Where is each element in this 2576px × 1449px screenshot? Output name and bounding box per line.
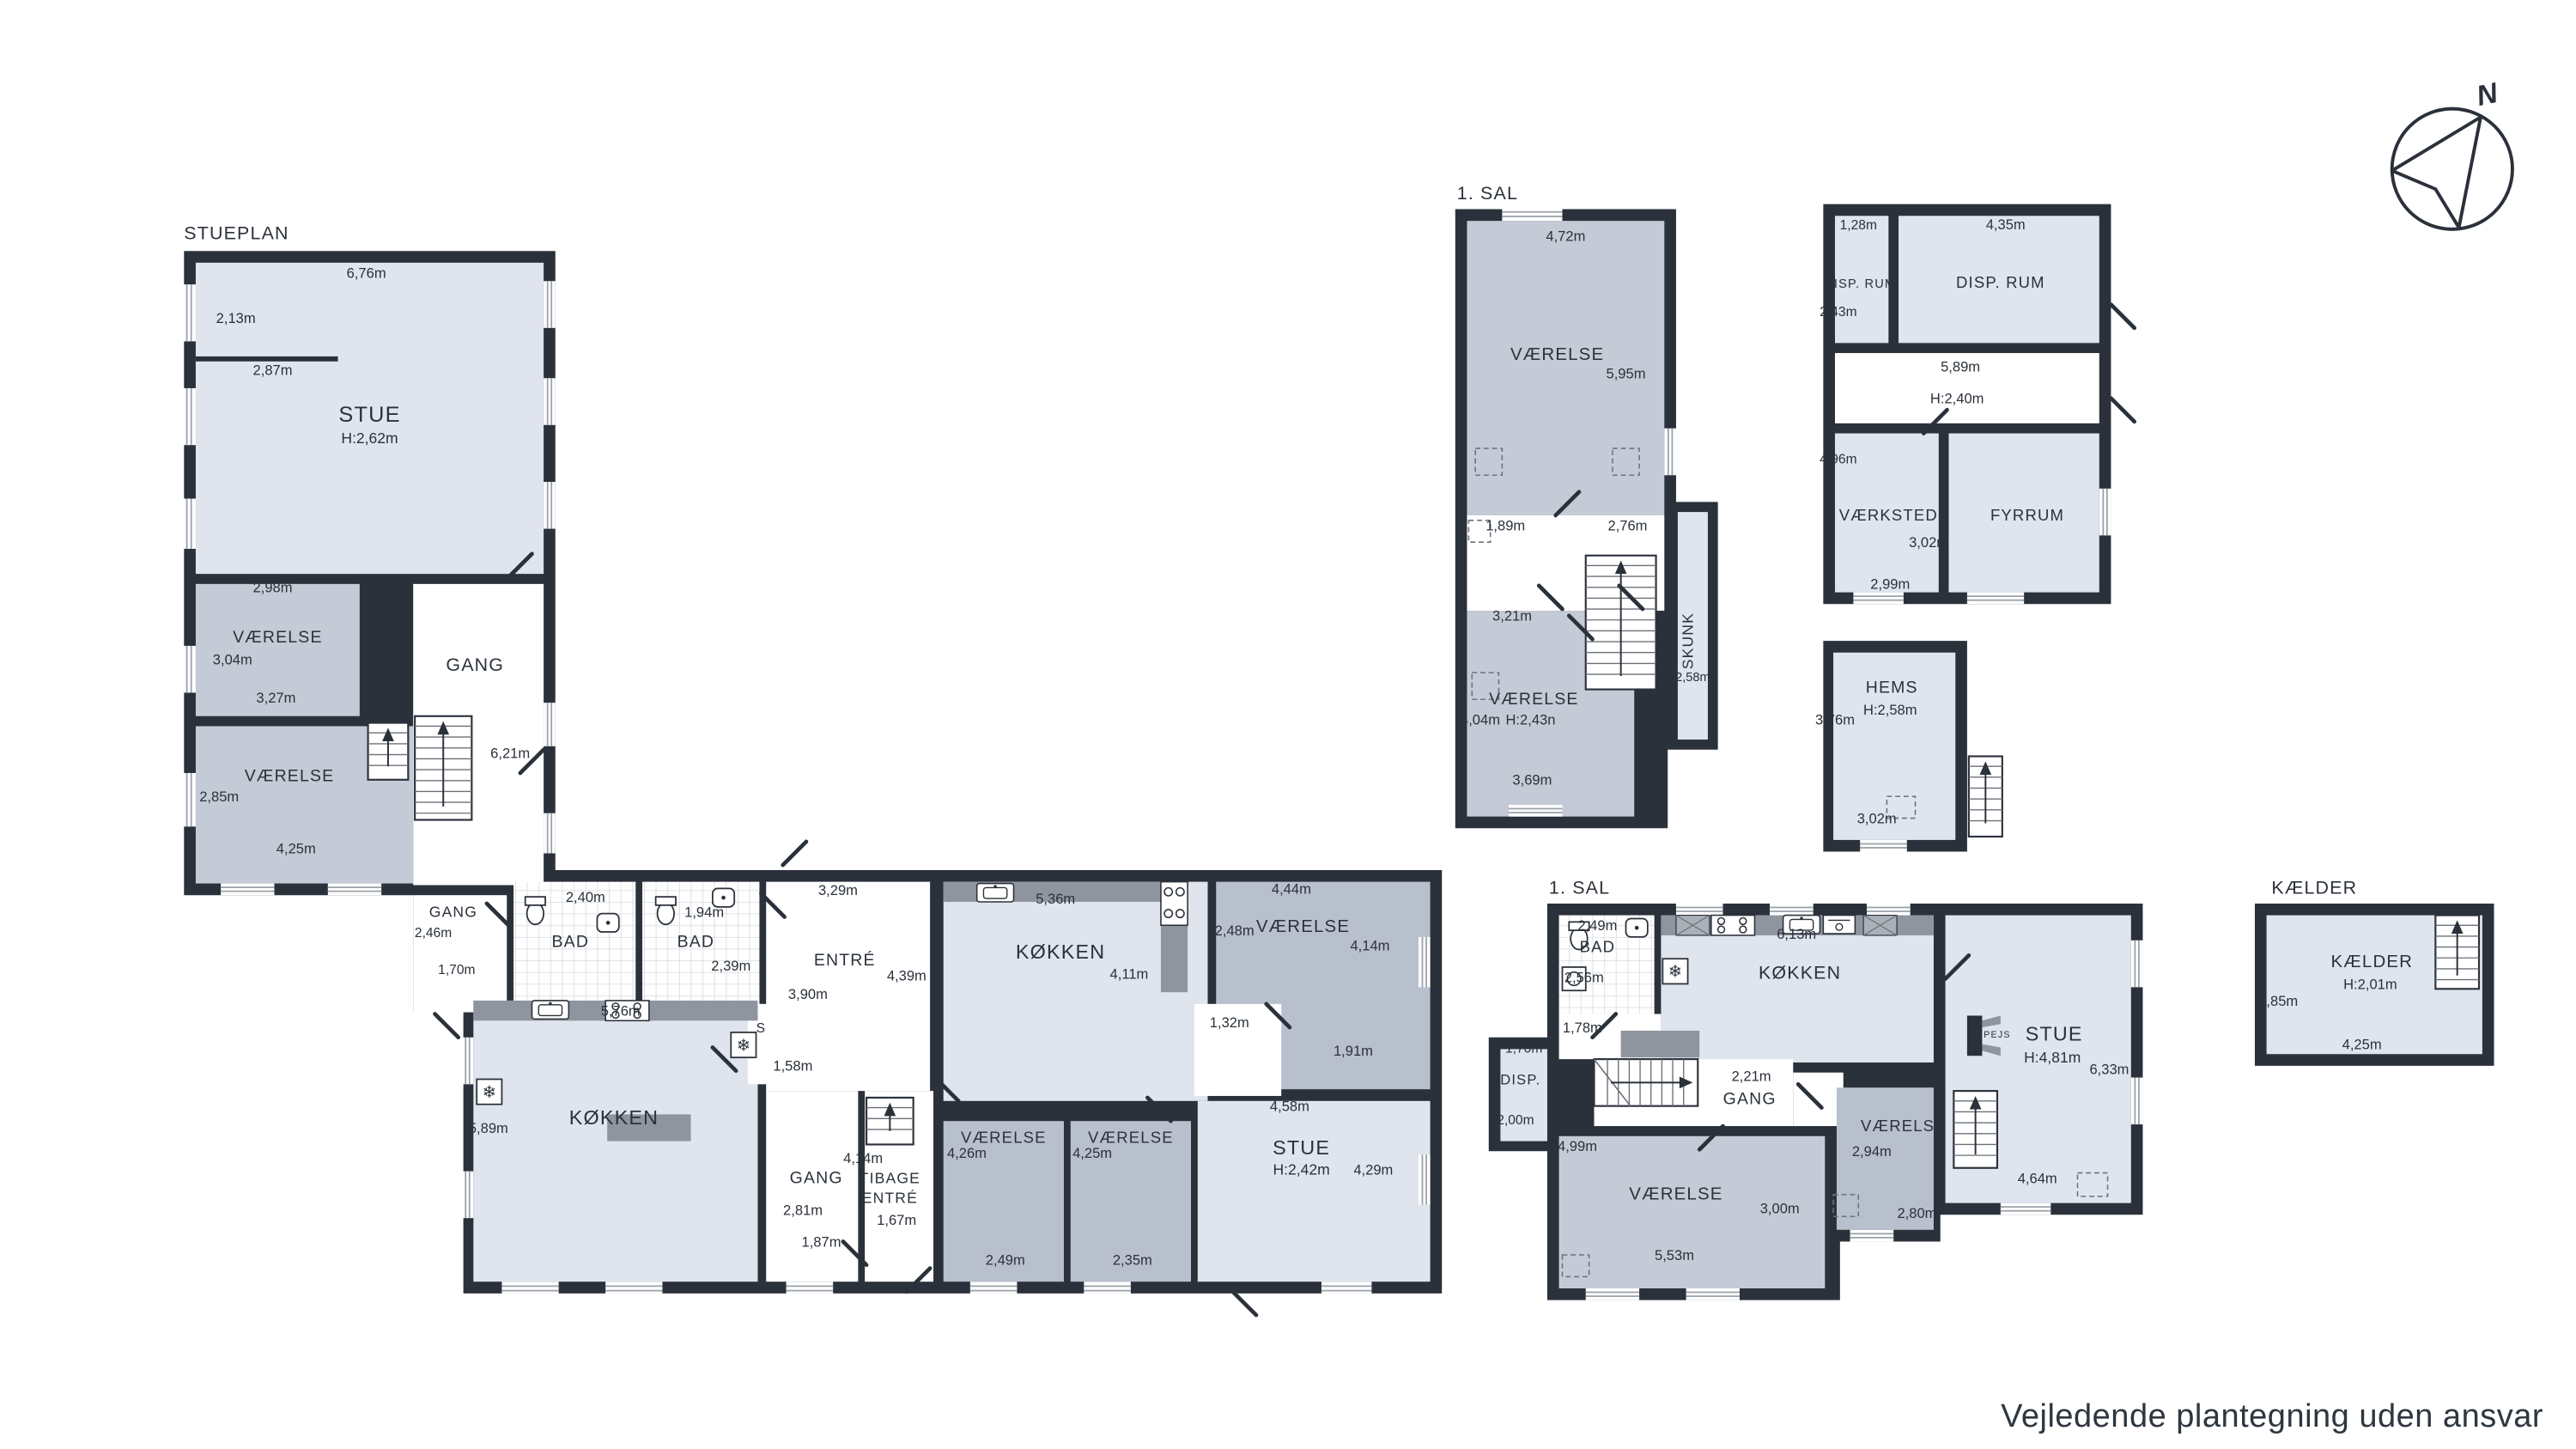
dimension-label: 2,49m [1577,917,1617,934]
window [2099,489,2111,536]
room-label: VÆRELSE [1510,344,1604,364]
window [544,813,556,854]
sink-faucet [993,885,997,888]
dimension-label: 2,48m [1215,922,1255,939]
dimension-label: 1,89m [1485,518,1525,534]
fridge-icon: ❄ [483,1083,496,1102]
room-label: KØKKEN [569,1106,659,1129]
window [1419,1154,1431,1204]
fridge-icon: ❄ [737,1036,750,1055]
dimension-label: 2,94m [1852,1143,1892,1160]
dimension-label: 4,44m [1272,880,1311,897]
room [473,1001,757,1282]
dimension-label: 4,72m [1546,228,1585,245]
room-label: GANG [790,1168,843,1187]
window [787,1282,834,1295]
dimension-label: 2,46m [415,926,452,941]
dimension-label: 6,76m [347,265,386,281]
toilet-tank [526,897,545,905]
dimension-label: 3,04m [213,651,252,667]
dimension-label: 3,90m [788,986,828,1002]
room-label: FYRRUM [1990,506,2064,524]
dimension-label: 4,96m [1820,453,1856,467]
dimension-label: 2,39m [711,958,750,974]
dimension-label: 4,35m [1986,216,2026,233]
window [1509,805,1562,817]
floor-plan-page: ❄❄❄STUEPLAN1. SAL1. SALKÆLDER6,76m2,13m2… [0,0,2576,1449]
window [1502,208,1562,222]
dimension-label: H:2,58m [1863,702,1917,718]
toilet-tank [656,897,676,905]
room-label: VÆRELSE [1629,1184,1722,1204]
room-label: ENTRÉ [862,1190,918,1207]
window [328,884,381,896]
dimension-label: 3,29m [818,882,858,898]
washbasin-drain [721,896,726,900]
room [1793,1073,1843,1126]
room-label: VÆRELSE [1256,916,1350,936]
room-label: STUE [2026,1023,2083,1045]
dimension-label: 5,53m [1655,1247,1694,1263]
dimension-label: 2,13m [216,310,256,326]
dimension-label: 1,67m [877,1212,916,1228]
washbasin-drain [606,921,611,925]
dimension-label: 2,80m [1897,1205,1936,1221]
dimension-label: 4,04m [1461,712,1500,728]
dimension-label: 2,85m [2258,993,2298,1009]
window [462,1038,474,1085]
room [1198,1101,1431,1282]
dimension-label: 5,36m [1036,891,1075,907]
floor-title: 1. SAL [1549,877,1610,898]
toilet-icon [527,903,544,924]
dimension-label: 5,95m [1607,365,1646,381]
room-label: HEMS [1866,678,1918,697]
dimension-label: 3,00m [1760,1200,1800,1216]
washbasin-drain [1635,926,1639,930]
compass-north-label: N [2474,77,2501,113]
room-label: VÆRELSE [233,628,322,647]
door-leaf [2111,399,2134,422]
room-label: BAD [1580,937,1616,955]
dimension-label: H:4,81m [2024,1049,2081,1066]
door-leaf [2111,305,2134,328]
window [1967,593,2024,605]
window [1867,904,1911,916]
fridge-icon: ❄ [1668,963,1682,982]
stove-icon [1161,882,1188,926]
window [544,281,556,328]
dimension-label: 1,91m [1334,1043,1373,1059]
floor-title: KÆLDER [2271,877,2357,898]
window [462,1172,474,1219]
door-leaf [435,1014,459,1038]
dimension-label: 6,13m [1777,926,1816,942]
window [182,773,196,826]
dimension-label: 4,25m [2342,1036,2382,1052]
dimension-label: 4,11m [1110,966,1149,983]
disclaimer-text: Vejledende plantegning uden ansvar [2001,1398,2543,1435]
window [1850,1230,1894,1242]
window [1419,937,1431,987]
dimension-label: 6,33m [2089,1062,2129,1078]
door-leaf [1233,1292,1256,1315]
room-label: BAD [552,933,590,952]
dimension-label: 2,99m [1870,576,1910,593]
window [182,646,196,693]
dimension-label: H:2,40m [1930,390,1984,406]
room-label: VÆRELSE [1088,1129,1174,1147]
dimension-label: H:2,43n [1505,712,1555,728]
door-leaf [783,842,806,865]
dimension-label: 4,14m [1350,937,1389,953]
toilet-icon [658,903,674,924]
window [544,378,556,425]
window [1586,1288,1639,1300]
room-label: STUE [1273,1136,1330,1159]
dimension-label: 5,89m [469,1120,508,1136]
room-label: KÆLDER [2331,952,2414,971]
window [182,499,196,549]
window [182,388,196,445]
dimension-label: 2,00m [1497,1113,1534,1128]
kitchen-counter [1161,922,1188,992]
room-label: BAD [677,933,715,952]
window [501,1282,558,1295]
room-label: VÆRELSE [1489,690,1578,709]
dimension-label: 2,56m [1564,969,1604,985]
dimension-label: 2,43m [1820,305,1856,320]
room-label: KØKKEN [1016,941,1105,963]
dimension-label: 4,14m [843,1150,883,1166]
sink-faucet [1800,916,1803,920]
room-label: GANG [446,654,504,675]
dimension-label: 1,70m [1505,1041,1542,1056]
floor-plan-canvas: ❄❄❄STUEPLAN1. SAL1. SALKÆLDER6,76m2,13m2… [0,0,2576,1449]
window [1084,1282,1131,1295]
dimension-label: 3,02m [1857,810,1897,826]
dimension-label: 1,94m [684,904,724,921]
room-label: ENTRÉ [814,950,876,970]
floor-title: 1. SAL [1457,183,1518,204]
window [2001,1203,2050,1215]
dimension-label: 4,58m [1270,1098,1309,1114]
fireplace-icon [1967,1015,1983,1056]
stove-icon [1711,916,1755,935]
dimension-label: 3,76m [1815,712,1855,728]
dimension-label: 4,39m [887,968,927,984]
floor-plans: ❄❄❄STUEPLAN1. SAL1. SALKÆLDER6,76m2,13m2… [182,183,2494,1315]
dimension-label: 3,02m [1909,534,1948,551]
dimension-label: 4,25m [276,840,316,856]
dimension-label: 1,28m [1840,218,1877,233]
dimension-label: 4,29m [1353,1162,1393,1178]
room-label: DISP. RUM [1956,273,2045,291]
room-label: KØKKEN [1759,963,1841,983]
room-label: GANG [429,904,477,921]
window [1321,1282,1371,1295]
dimension-label: 5,89m [1941,358,1980,374]
dimension-label: 2,76m [1607,518,1647,534]
dimension-label: H:2,62m [341,429,398,447]
window [2131,941,2143,988]
dimension-label: H:2,42m [1273,1161,1329,1178]
room-label: VÆRELSE [961,1129,1047,1147]
dimension-label: 3,21m [1492,608,1532,624]
dimension-label: 2,21m [1732,1068,1771,1084]
dimension-label: 1,87m [801,1233,841,1250]
dimension-label: 2,87m [253,362,293,378]
dishwasher-icon [1823,916,1855,934]
window [970,1282,1018,1295]
room-label: DISP. RUM [1824,277,1896,291]
dimension-label: 5,76m [601,1002,641,1019]
room-label: TIBAGE [860,1169,920,1186]
dimension-label: 3,69m [1512,772,1552,788]
dimension-label: 2,98m [253,580,293,596]
window [2131,1078,2143,1125]
dimension-label: 4,99m [1558,1138,1597,1154]
compass: N [2392,77,2512,229]
room-label: PEJS [1984,1030,2010,1040]
dimension-label: 1,58m [773,1058,812,1075]
dimension-label: 4,64m [2018,1170,2057,1186]
dimension-label: 2,35m [1113,1252,1152,1269]
window [1770,904,1814,916]
window [1860,840,1907,852]
dimension-label: 1,78m [1563,1020,1602,1036]
sink-faucet [549,1002,552,1006]
dimension-label: 1,32m [1210,1014,1249,1031]
window [1676,904,1723,916]
kitchen-counter [1621,1031,1700,1057]
dimension-label: 4,25m [1072,1145,1112,1161]
window [1686,1288,1740,1300]
dimension-label: 3,27m [256,690,295,706]
room-label: VÆRELSE [1861,1117,1947,1135]
room-label: VÆRELSE [245,767,334,786]
dimension-label: 2,85m [199,788,239,805]
dimension-label: 4,26m [947,1145,987,1161]
dimension-label: 2,49m [986,1252,1025,1269]
window [1664,429,1676,476]
window [221,884,274,896]
window [1853,593,1903,605]
room-label: S [756,1021,767,1036]
room-label: GANG [1723,1090,1777,1109]
window [544,703,556,746]
room-label: VÆRKSTED [1839,506,1938,524]
dimension-label: 6,21m [490,745,530,761]
room-label: STUE [338,403,400,427]
dimension-label: 2,40m [566,889,605,905]
window [544,482,556,529]
dimension-label: 2,58m [1675,671,1710,685]
window [605,1282,662,1295]
partition-wall [196,356,338,362]
room-label: DISP. [1500,1071,1540,1087]
room-label: SKUNK [1679,612,1696,669]
dimension-label: H:2,01m [2343,976,2397,992]
dimension-label: 2,81m [783,1202,823,1218]
dimension-label: 1,70m [438,963,475,977]
floor-title: STUEPLAN [184,223,289,244]
window [182,284,196,341]
